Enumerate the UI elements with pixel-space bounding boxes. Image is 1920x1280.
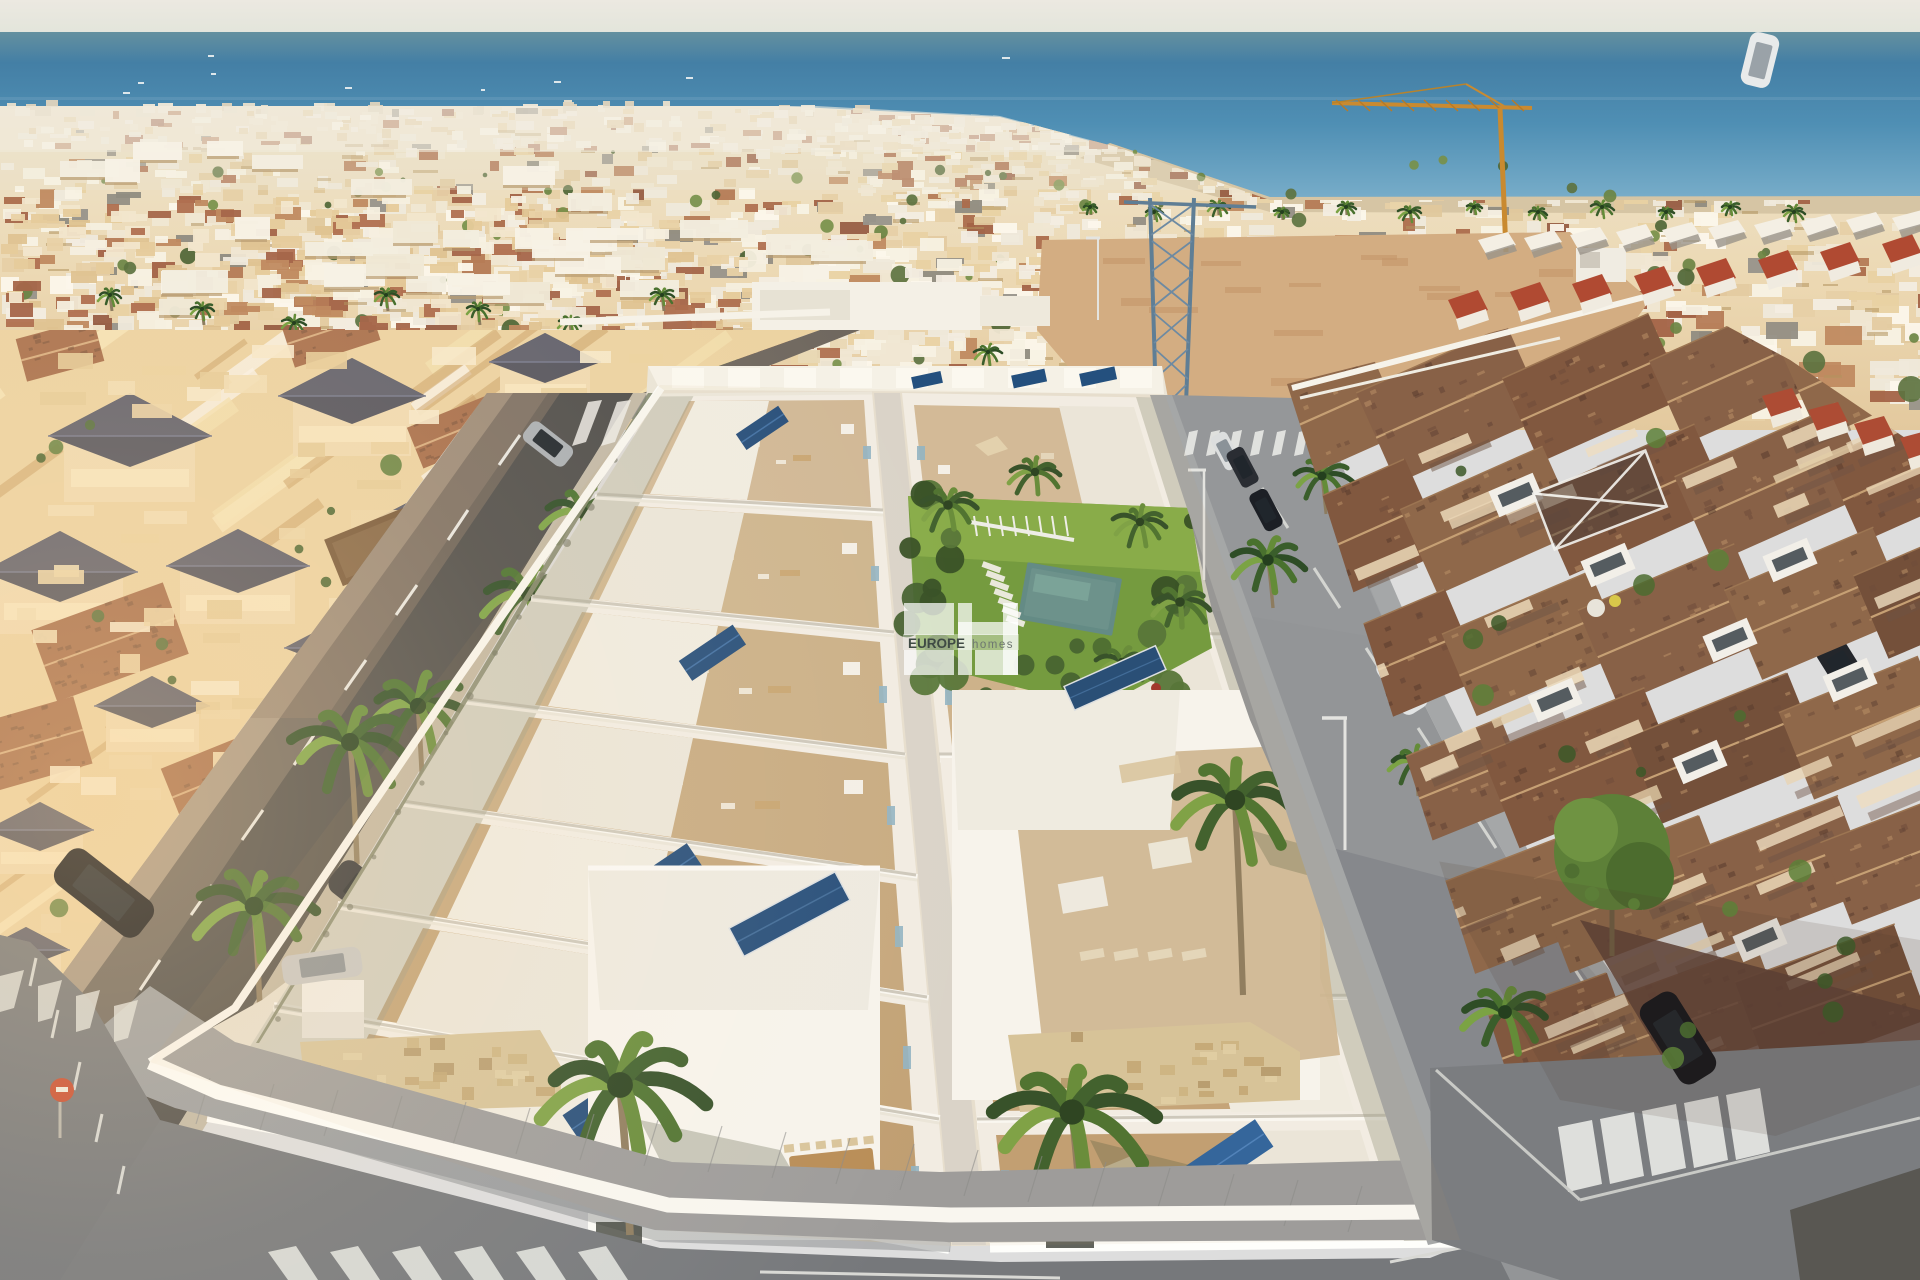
svg-text:EUROPE: EUROPE <box>908 636 965 651</box>
svg-text:homes: homes <box>972 639 1014 651</box>
